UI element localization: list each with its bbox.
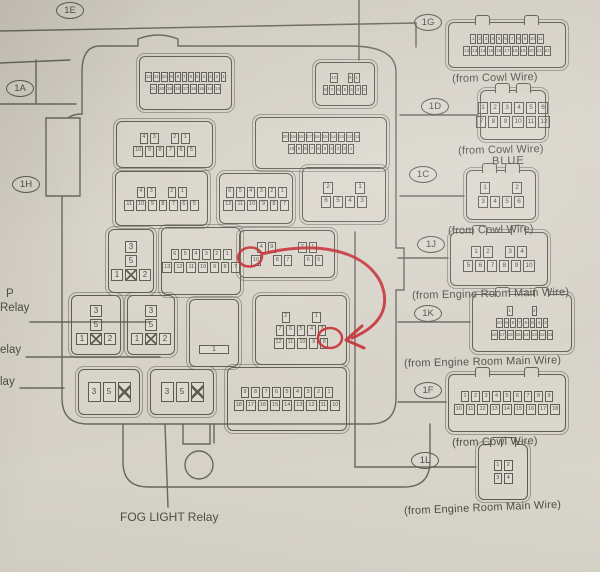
pin: 11 [537, 34, 544, 44]
pin: 6 [475, 260, 485, 272]
pin-row: 1091 [330, 73, 359, 83]
pin: 14 [479, 46, 486, 56]
pin-row: 76543 [276, 325, 327, 336]
pin: 3 [90, 305, 102, 317]
pin-row: 108765 [251, 255, 323, 266]
pin: 6 [316, 144, 322, 154]
pin-row: 5 [90, 319, 102, 331]
pin: 8 [323, 85, 329, 95]
pin: 12 [174, 262, 184, 273]
pin: 6 [180, 200, 189, 211]
pin: 5 [503, 391, 512, 402]
pin-row: 3456 [478, 196, 524, 208]
pin: 11 [186, 262, 196, 273]
pin: 8 [516, 34, 522, 44]
pin: 2 [171, 133, 180, 144]
pin: 12 [346, 132, 353, 142]
pin: 2 [268, 187, 277, 198]
pin: 13 [162, 262, 172, 273]
box-connector-row3-right: 216543 [302, 167, 386, 222]
callout-label-1j: 1J [417, 236, 445, 253]
pin: 3 [208, 72, 214, 82]
pin-row: 789101112 [476, 116, 549, 128]
pin: 9 [500, 116, 510, 128]
pin: 8 [175, 72, 181, 82]
pin: 10 [297, 338, 307, 349]
pin: 14 [282, 400, 292, 411]
pin: 8 [251, 387, 260, 398]
pin: 10 [330, 400, 340, 411]
pin: 7 [280, 200, 289, 211]
pin-row: 3 [90, 305, 102, 317]
pin-row: 4321 [140, 133, 190, 144]
pin-row: 8765432 [323, 85, 368, 95]
pin: 11 [526, 116, 537, 128]
pin: 4 [490, 196, 500, 208]
pin: 9 [348, 73, 354, 83]
pin: 10 [288, 144, 295, 154]
pin: 18 [298, 132, 305, 142]
pin: 7 [284, 255, 293, 266]
pin: 7 [509, 34, 515, 44]
box-connector-row3-mid: 654321121110987 [219, 173, 293, 224]
pin: 2 [298, 242, 307, 253]
pin-row: 654321 [226, 187, 287, 198]
pin: 5 [322, 144, 328, 154]
pin: 7 [276, 325, 285, 336]
callout-label-1d: 1D [421, 98, 449, 115]
pin-row: 181716151413121110 [234, 400, 341, 411]
callout-label-1k: 1K [414, 305, 442, 322]
pin-gap [161, 138, 169, 139]
pin: 5 [176, 382, 189, 402]
pin: 8 [488, 116, 498, 128]
connector-1l: 1234 [478, 444, 528, 500]
pin: 11 [319, 400, 329, 411]
pin: 1 [470, 34, 476, 44]
pin-gap [345, 187, 353, 188]
box-connector-bottom: 987654321181716151413121110 [227, 367, 347, 431]
pin: 3 [543, 318, 549, 328]
pin: 6 [336, 85, 342, 95]
pin: 12 [306, 400, 316, 411]
pin-row: 34 [494, 473, 513, 484]
pin: 2 [213, 249, 222, 260]
pin: 3 [318, 325, 327, 336]
pin: 8 [273, 255, 282, 266]
pin-row: 12 [507, 306, 537, 316]
pin: 9 [145, 146, 154, 157]
pin: 2 [104, 333, 116, 345]
pin: 19 [166, 84, 173, 94]
pin: 2 [159, 333, 171, 345]
connector-1f: 123456789101112131415161718 [448, 374, 566, 432]
relay-row4: 3512 [108, 229, 154, 293]
pin: 16 [314, 132, 321, 142]
relay-row6-mid: 35 [150, 369, 214, 415]
junction-box-left-tab [46, 118, 80, 196]
pin-row: 10987654321 [288, 144, 354, 154]
pin: 11 [286, 338, 296, 349]
pin: 18 [550, 404, 560, 415]
pin: 4 [492, 391, 501, 402]
relay-label-partial: lay [0, 376, 15, 388]
pin: 12 [477, 404, 487, 415]
pin-row: 5678910 [463, 260, 534, 272]
pin-gap [263, 260, 271, 261]
pin: 1 [471, 246, 481, 258]
pin: 2 [314, 387, 323, 398]
pin: 12 [145, 72, 152, 82]
pin: 4 [137, 187, 146, 198]
pin-row: 12 [494, 460, 513, 471]
pin-row: 21 [323, 182, 365, 194]
box-connector-row5-right: 217654312111098 [255, 295, 347, 365]
pin: 5 [236, 187, 245, 198]
pin-gap [294, 260, 302, 261]
pin: 12 [538, 116, 549, 128]
pin: 8 [159, 200, 168, 211]
box-connector-top-right: 10918765432 [315, 62, 375, 106]
box-connector-row2-right: 2019181716151413121110987654321 [255, 117, 387, 169]
pin: 3 [150, 133, 159, 144]
pin: 5 [530, 318, 536, 328]
pin: 17 [503, 46, 510, 56]
pin: 10 [161, 72, 168, 82]
fog-light-relay-label: FOG LIGHT Relay [120, 510, 218, 524]
pin-row: 4321 [137, 187, 187, 198]
pin: 2 [512, 182, 522, 194]
pin: 1 [221, 72, 227, 82]
box-connector-row4-right: 4921108765 [239, 230, 335, 278]
pin: 9 [148, 200, 157, 211]
pin: 15 [487, 46, 494, 56]
mounting-hole [185, 451, 213, 479]
relay-label-partial: P [6, 288, 14, 300]
pin: 12 [463, 46, 470, 56]
pin: 18 [491, 330, 498, 340]
pin-row: 12 [480, 182, 522, 194]
pin: 9 [504, 318, 510, 328]
pin-row: 12 [131, 333, 171, 345]
pin: 6 [188, 72, 194, 82]
pin: 15 [515, 330, 522, 340]
pin: 11 [354, 132, 361, 142]
pin: 15 [198, 84, 205, 94]
pin: 1 [354, 73, 360, 83]
box-connector-row2-left: 43211098765 [116, 121, 213, 168]
pin: 2 [362, 85, 368, 95]
pin: 5 [181, 249, 190, 260]
pin: 15 [514, 404, 524, 415]
pin: 1 [355, 182, 365, 194]
pin: 14 [502, 404, 512, 415]
pin: 16 [495, 46, 502, 56]
pin-gap [495, 252, 503, 253]
pin: 5 [315, 255, 324, 266]
pin: 4 [140, 133, 149, 144]
pin: 19 [520, 46, 527, 56]
pin: 1 [478, 102, 488, 114]
pin: 2 [504, 460, 513, 471]
pin: 10 [330, 73, 337, 83]
pin: 4 [201, 72, 207, 82]
pin: 3 [482, 391, 491, 402]
relay-row5-mid: 3512 [127, 295, 175, 355]
pin: 9 [296, 144, 302, 154]
zone-label-1e: 1E [56, 2, 84, 19]
connector-1g-caption: (from Cowl Wire) [452, 71, 538, 85]
connector-1d: 123456789101112 [480, 90, 546, 140]
pin: 5 [103, 382, 116, 402]
pin: 10 [247, 200, 257, 211]
pin: 10 [136, 200, 146, 211]
leader-line [0, 23, 416, 31]
pin: 6 [321, 196, 331, 208]
pin-row: 4921 [257, 242, 317, 253]
pin: 4 [293, 387, 302, 398]
pin: 7 [182, 72, 188, 82]
pin: 2 [282, 312, 291, 323]
pin: 3 [505, 246, 515, 258]
pin: 1 [199, 345, 229, 354]
pin-gap [302, 317, 310, 318]
pin-gap [502, 188, 510, 189]
pin-row: 212019181716151413 [150, 84, 221, 94]
relay-row5-left: 3512 [71, 295, 121, 355]
pin: 1 [178, 187, 187, 198]
pin: 5 [190, 200, 199, 211]
pin: 3 [483, 34, 489, 44]
pin: 1 [461, 391, 470, 402]
pin-gap [278, 247, 286, 248]
crossed-pin [90, 333, 102, 345]
pin: 14 [523, 330, 530, 340]
pin: 5 [463, 260, 473, 272]
pin: 2 [214, 72, 220, 82]
pin-row: 5 [145, 319, 157, 331]
pin: 6 [272, 387, 281, 398]
pin: 8 [221, 262, 230, 273]
pin: 14 [206, 84, 213, 94]
pin: 1 [325, 387, 334, 398]
connector-1c: 123456 [466, 170, 536, 220]
connector-1j: 12345678910 [450, 232, 548, 286]
pin: 19 [290, 132, 297, 142]
pin: 2 [168, 187, 177, 198]
pin: 10 [523, 260, 534, 272]
pin: 3 [502, 102, 512, 114]
pin: 21 [536, 46, 543, 56]
pin-gap [335, 187, 343, 188]
pin: 2 [471, 391, 480, 402]
pin: 5 [502, 196, 512, 208]
crossed-pin [118, 382, 131, 402]
zone-label-1h: 1H [12, 176, 40, 193]
pin-row: 654321 [171, 249, 232, 260]
pin: 6 [523, 318, 529, 328]
pin: 3 [257, 187, 266, 198]
pin: 6 [514, 196, 524, 208]
connector-1g: 12345678910111213141516171819202122 [448, 22, 566, 68]
pin-gap [158, 192, 166, 193]
pin: 4 [307, 325, 316, 336]
pin: 3 [478, 196, 488, 208]
pin: 4 [345, 196, 355, 208]
pin-gap [523, 311, 531, 312]
pin-row: 1098765 [133, 146, 196, 157]
pin: 6 [513, 391, 522, 402]
pin: 8 [270, 200, 279, 211]
pin: 4 [192, 249, 201, 260]
pin: 5 [297, 325, 306, 336]
pin: 4 [536, 318, 542, 328]
pin-row: 13121110987 [162, 262, 240, 273]
pin: 14 [330, 132, 337, 142]
pin-gap [514, 311, 522, 312]
pin: 9 [268, 242, 277, 253]
bottom-notch [183, 424, 210, 444]
leader-line [0, 60, 70, 63]
pin: 7 [487, 260, 497, 272]
callout-label-1l: 1L [411, 452, 439, 469]
pin: 5 [145, 319, 157, 331]
pin: 7 [309, 144, 315, 154]
pin: 17 [306, 132, 313, 142]
pin: 15 [322, 132, 329, 142]
pin: 1 [131, 333, 143, 345]
pin: 2 [477, 34, 483, 44]
pin-row: 121110987 [223, 200, 288, 211]
pin-row: 109876543 [496, 318, 549, 328]
pin: 18 [234, 400, 244, 411]
connector-1c-caption: (from Cowl Wire) [448, 223, 534, 237]
pin: 2 [532, 306, 538, 316]
pin-gap [292, 317, 300, 318]
pin-gap [492, 188, 500, 189]
pin: 7 [169, 200, 178, 211]
relay-label-partial: elay [0, 344, 21, 356]
pin: 4 [490, 34, 496, 44]
pin-row: 1234567891011 [470, 34, 543, 44]
pin: 11 [547, 330, 554, 340]
pin: 3 [88, 382, 101, 402]
pin: 4 [349, 85, 355, 95]
pin: 1 [480, 182, 490, 194]
pin: 10 [496, 318, 503, 328]
box-connector-row4-mid: 65432113121110987 [161, 227, 241, 295]
pin-row: 3 [145, 305, 157, 317]
pin: 6 [177, 146, 186, 157]
pin-row: 1234 [471, 246, 527, 258]
pin: 3 [145, 305, 157, 317]
pin: 5 [90, 319, 102, 331]
pin: 8 [510, 318, 516, 328]
zone-label-1a: 1A [6, 80, 34, 97]
pin-row: 1 [199, 345, 229, 354]
pin: 16 [190, 84, 197, 94]
pin: 3 [335, 144, 341, 154]
pin: 10 [198, 262, 208, 273]
pin: 3 [147, 187, 156, 198]
crossed-pin [145, 333, 157, 345]
crossed-pin [125, 269, 137, 281]
relay-row6-left: 35 [78, 369, 140, 415]
pin: 2 [323, 182, 333, 194]
pin: 3 [202, 249, 211, 260]
pin: 1 [348, 144, 354, 154]
pin: 1 [309, 242, 318, 253]
pin: 2 [490, 102, 500, 114]
callout-label-1c: 1C [409, 166, 437, 183]
red-arrowhead [346, 326, 364, 348]
pin: 16 [258, 400, 268, 411]
pin-row: 12111098 [274, 338, 329, 349]
pin: 10 [133, 146, 143, 157]
pin: 12 [539, 330, 546, 340]
pin-row: 1213141516171819202122 [463, 46, 550, 56]
pin: 11 [153, 72, 160, 82]
pin: 13 [294, 400, 304, 411]
callout-label-1f: 1F [414, 382, 442, 399]
pin: 5 [526, 102, 536, 114]
pin: 9 [241, 387, 250, 398]
pin: 8 [534, 391, 543, 402]
pin: 12 [274, 338, 284, 349]
connector-1c-color-note: BLUE [492, 155, 525, 168]
pin: 8 [320, 338, 329, 349]
pin: 3 [161, 382, 174, 402]
pin: 15 [270, 400, 280, 411]
pin: 20 [528, 46, 535, 56]
pin: 5 [283, 387, 292, 398]
pin: 7 [262, 387, 271, 398]
pin-row: 111098765 [124, 200, 198, 211]
pin: 8 [156, 146, 165, 157]
pin: 8 [303, 144, 309, 154]
box-connector-row3-left: 4321111098765 [115, 171, 208, 226]
pin: 6 [503, 34, 509, 44]
pin: 4 [517, 246, 527, 258]
pin: 7 [524, 391, 533, 402]
pin: 1 [278, 187, 287, 198]
pin: 5 [496, 34, 502, 44]
pin: 9 [522, 34, 528, 44]
junction-box-bottom-tab [123, 424, 430, 487]
pin: 13 [490, 404, 500, 415]
pin: 1 [223, 249, 232, 260]
pin: 1 [76, 333, 88, 345]
pin-row: 121110987654321 [145, 72, 226, 82]
pin: 17 [246, 400, 256, 411]
pin: 6 [171, 249, 180, 260]
pin: 22 [544, 46, 551, 56]
pin: 9 [511, 260, 521, 272]
pin: 4 [247, 187, 256, 198]
pin: 5 [333, 196, 343, 208]
fog-light-relay: 1 [189, 299, 239, 367]
pin: 12 [223, 200, 233, 211]
pin: 20 [282, 132, 289, 142]
callout-label-1g: 1G [414, 14, 442, 31]
pin: 5 [342, 85, 348, 95]
pin: 10 [251, 255, 261, 266]
pin: 5 [125, 255, 137, 267]
pin-row: 12 [111, 269, 151, 281]
pin: 6 [226, 187, 235, 198]
pin: 18 [512, 46, 519, 56]
pin: 9 [169, 72, 175, 82]
